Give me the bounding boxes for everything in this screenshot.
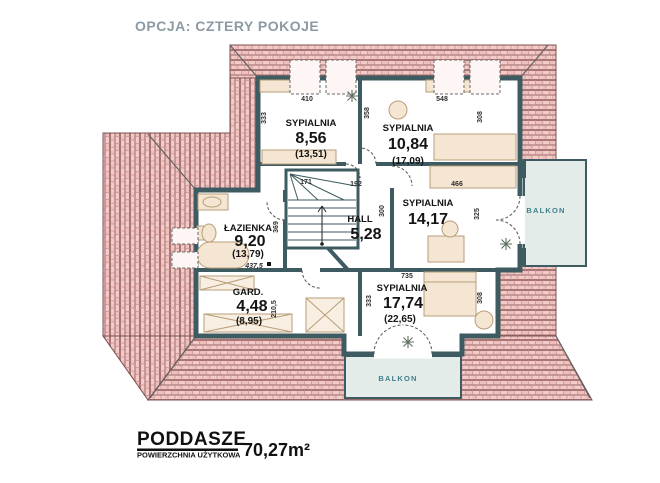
floor-plan-drawing: OPCJA: CZTERY POKOJE BALKON BALKON xyxy=(0,0,660,483)
floor-level-mark: 437,5 xyxy=(244,263,263,270)
window-bathroom-b xyxy=(172,252,198,268)
window-bathroom-a xyxy=(172,228,198,244)
hall-area: 5,28 xyxy=(350,226,381,243)
balcony-right-door-opening xyxy=(515,196,525,244)
staircase xyxy=(286,170,358,248)
bathroom-area: 9,20 xyxy=(234,233,265,250)
bedroom1-name: SYPIALNIA xyxy=(286,118,337,129)
dim-bedroom3-depth: 325 xyxy=(474,208,481,220)
skylight-bedroom1-a xyxy=(290,60,320,94)
floor-plan-page: OPCJA: CZTERY POKOJE BALKON BALKON xyxy=(0,0,660,483)
plant-icon xyxy=(346,90,358,102)
plant-icon xyxy=(402,336,414,348)
bedroom4-bed xyxy=(424,272,476,316)
footer: PODDASZE POWIERZCHNIA UŻYTKOWA 70,27m² xyxy=(137,429,310,460)
stairs-arrow-origin xyxy=(320,242,324,246)
bathroom-sink xyxy=(203,197,221,207)
bathroom-toilet xyxy=(202,224,216,242)
dim-bedroom4-depth-right: 308 xyxy=(477,292,484,304)
bedroom2-name: SYPIALNIA xyxy=(383,123,434,134)
footer-area-label: POWIERZCHNIA UŻYTKOWA xyxy=(137,451,241,460)
dim-corridor-width: 192 xyxy=(350,181,362,188)
bedroom4-gross-area: (22,65) xyxy=(384,314,416,325)
page-title: OPCJA: CZTERY POKOJE xyxy=(135,18,319,34)
bedroom3-area: 14,17 xyxy=(408,211,448,228)
bedroom4-area: 17,74 xyxy=(383,295,423,312)
dim-divider-wall: 358 xyxy=(364,107,371,119)
skylight-bedroom2-a xyxy=(434,60,464,94)
bathroom-gross-area: (13,79) xyxy=(232,249,264,260)
bedroom3-bed xyxy=(430,166,516,188)
dim-bedroom4-depth-left: 333 xyxy=(366,295,373,307)
footer-level-name: PODDASZE xyxy=(137,429,247,450)
dim-wardrobe-depth: 210,5 xyxy=(271,300,278,318)
skylight-bedroom2-b xyxy=(470,60,500,94)
bedroom3-desk xyxy=(428,236,464,262)
bedroom2-gross-area: (17,09) xyxy=(392,156,424,167)
room-label-bedroom3: SYPIALNIA 14,17 xyxy=(403,198,454,228)
bedroom2-armchair xyxy=(389,101,407,119)
hall-name: HALL xyxy=(347,214,373,225)
balcony-right-label: BALKON xyxy=(526,206,565,215)
wardrobe-gross-area: (8,95) xyxy=(236,316,262,327)
floor-level-marker-icon xyxy=(267,262,271,266)
balcony-bottom-door-opening xyxy=(374,350,432,359)
dim-bedroom1-width: 410 xyxy=(301,96,313,103)
bedroom1-gross-area: (13,51) xyxy=(295,149,327,160)
wardrobe-area: 4,48 xyxy=(236,298,267,315)
bedroom4-name: SYPIALNIA xyxy=(377,283,428,294)
dim-bedroom2-depth: 308 xyxy=(477,111,484,123)
roof-surface-right-lower xyxy=(498,266,556,336)
wardrobe-name: GARD. xyxy=(233,287,264,298)
skylight-bedroom1-b xyxy=(326,60,356,94)
dim-bedroom1-depth: 333 xyxy=(261,112,268,124)
dim-bedroom4-width: 735 xyxy=(401,273,413,280)
dim-stairs-width: 171 xyxy=(300,179,312,186)
footer-area-value: 70,27m² xyxy=(243,440,310,460)
dim-hall-depth: 300 xyxy=(379,205,386,217)
dim-bedroom3-width: 466 xyxy=(451,181,463,188)
dim-bedroom2-width: 548 xyxy=(436,96,448,103)
bedroom3-name: SYPIALNIA xyxy=(403,198,454,209)
bedroom2-area: 10,84 xyxy=(388,136,428,153)
balcony-bottom-label: BALKON xyxy=(378,374,417,383)
bedroom4-armchair xyxy=(475,311,493,329)
bedroom1-area: 8,56 xyxy=(295,130,326,147)
dim-bathroom-depth: 369 xyxy=(273,221,280,233)
bedroom2-bed xyxy=(434,134,516,160)
plant-icon xyxy=(500,238,512,250)
